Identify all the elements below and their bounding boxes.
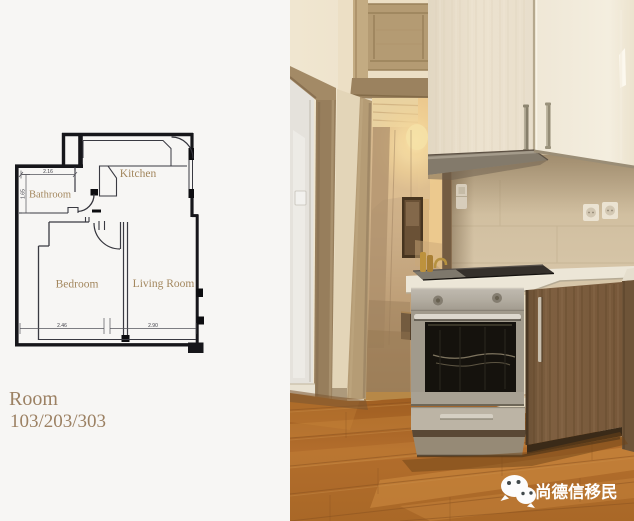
svg-text:1.65: 1.65 [21,189,27,199]
svg-text:2.90: 2.90 [148,323,158,329]
svg-text:Living Room: Living Room [133,278,195,290]
svg-text:尚德信移民: 尚德信移民 [535,482,618,502]
svg-text:Kitchen: Kitchen [120,168,157,180]
svg-text:2.16: 2.16 [43,169,53,175]
svg-text:Bedroom: Bedroom [56,279,99,291]
svg-text:2.46: 2.46 [57,323,67,329]
svg-text:Bathroom: Bathroom [29,190,71,201]
svg-text:103/203/303: 103/203/303 [10,411,106,432]
svg-text:Room: Room [9,388,58,410]
